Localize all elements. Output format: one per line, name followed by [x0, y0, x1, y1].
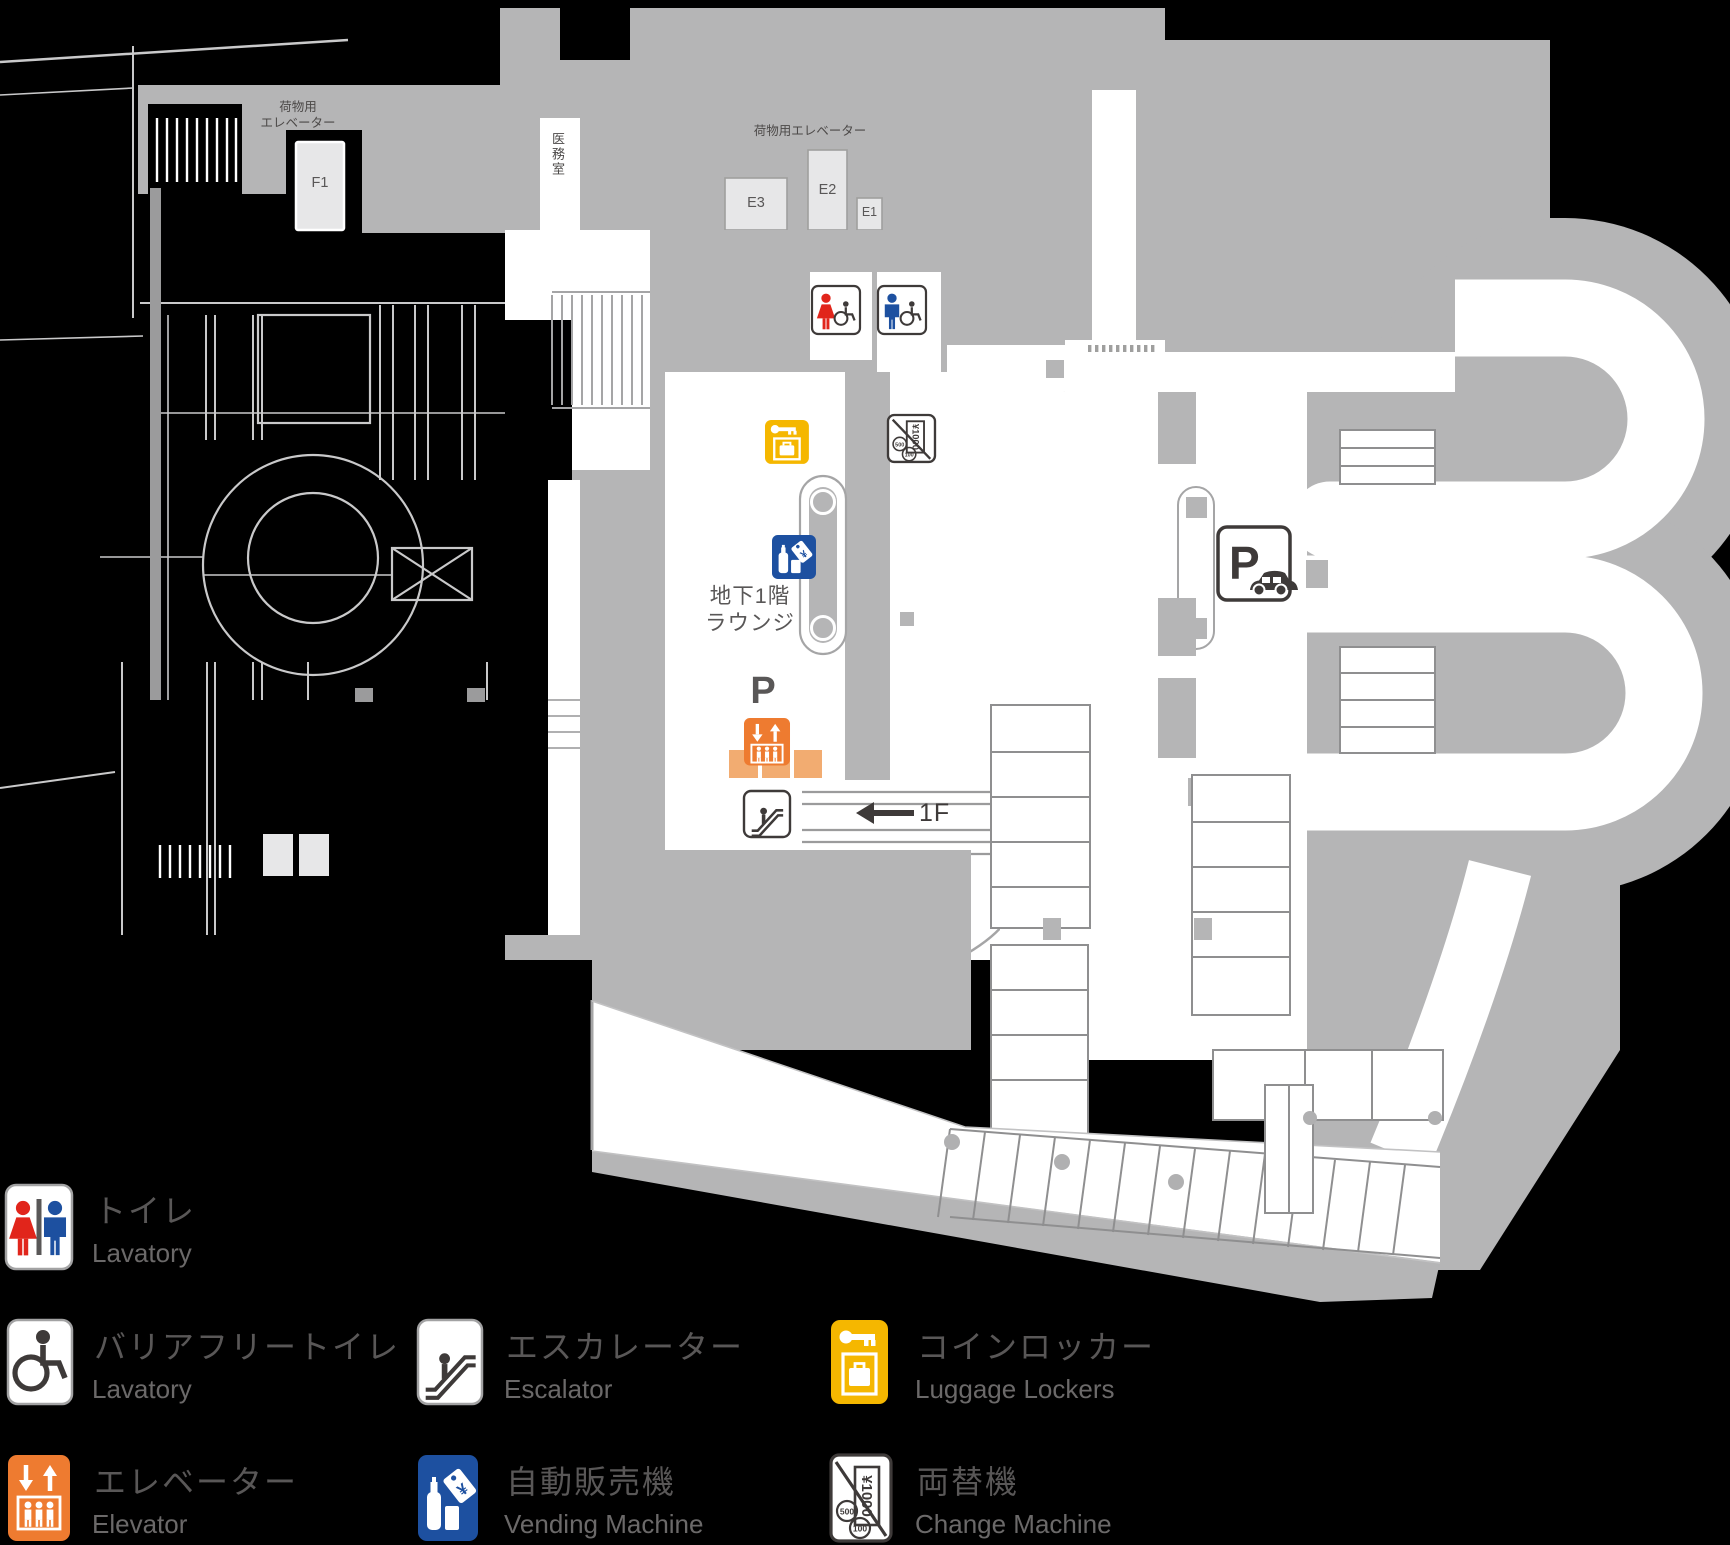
legend-escalator-en: Escalator — [504, 1374, 612, 1405]
stall-column-2 — [1192, 775, 1290, 1015]
legend-coin-locker-icon — [831, 1320, 888, 1404]
vending-machine-icon: ¥ — [772, 535, 816, 579]
change-machine-icon: ¥1000 500 100 — [888, 415, 935, 462]
legend-elevator-jp: エレベーター — [94, 1457, 298, 1503]
freight-elevator-e1-label: E1 — [857, 205, 882, 221]
luggage-elevator-top-label: 荷物用エレベーター — [735, 124, 885, 140]
coin-500-label: 500 — [895, 442, 904, 448]
floorplan-canvas: ¥1000 500 100 ¥ — [0, 0, 1730, 1545]
stalls-ramp-lower — [1340, 647, 1435, 753]
service-lift-cells — [263, 834, 293, 876]
legend-toilet-icon — [6, 1185, 72, 1269]
legend-vending-icon: ¥ — [418, 1455, 478, 1541]
coin-500-label: 500 — [840, 1507, 854, 1517]
legend-coin-locker-jp: コインロッカー — [917, 1322, 1155, 1368]
legend-change-machine-en: Change Machine — [915, 1509, 1112, 1540]
legend-escalator-jp: エスカレーター — [506, 1322, 744, 1368]
stalls-ramp-upper — [1340, 430, 1435, 484]
service-lane — [1092, 90, 1136, 352]
legend-toilet-en: Lavatory — [92, 1238, 192, 1269]
legend-change-machine-jp: 両替機 — [917, 1457, 1019, 1503]
b1-lounge-label: 地下1階 ラウンジ — [690, 583, 810, 637]
coin-locker-icon — [765, 420, 809, 464]
legend-change-machine-icon: ¥1000 500 100 — [831, 1455, 891, 1541]
legend-elevator-icon — [8, 1455, 70, 1541]
parking-p-letter: P — [1229, 537, 1260, 589]
legend-elevator-en: Elevator — [92, 1509, 187, 1540]
legend-vending-en: Vending Machine — [504, 1509, 703, 1540]
ramp-approach-road — [1065, 352, 1455, 392]
freight-elevator-e3-label: E3 — [725, 194, 787, 212]
stalls-row-right — [1213, 1050, 1443, 1120]
freight-elevator-e2-label: E2 — [808, 181, 847, 199]
lavatory-men-icon — [878, 286, 926, 334]
stall-column-1 — [991, 705, 1090, 1135]
parking-car-icon: P — [1218, 527, 1298, 600]
legend-barrier-free-en: Lavatory — [92, 1374, 192, 1405]
legend-toilet-jp: トイレ — [94, 1186, 196, 1232]
luggage-elevator-left-label: 荷物用 エレベーター — [248, 100, 348, 131]
parking-area-label: P — [738, 668, 788, 716]
freight-elevator-f1-label: F1 — [296, 174, 344, 192]
service-corridor-strip — [548, 480, 580, 935]
floor-map-b1: ¥1000 500 100 ¥ — [0, 0, 1730, 1545]
lavatory-women-icon — [812, 286, 860, 334]
coin-100-label: 100 — [853, 1524, 867, 1534]
legend-coin-locker-en: Luggage Lockers — [915, 1374, 1114, 1405]
escalator-icon — [744, 791, 790, 837]
legend-barrier-free-icon — [8, 1320, 72, 1404]
elevator-icon — [744, 718, 790, 765]
wall-strip — [150, 188, 161, 700]
coin-100-label: 100 — [905, 452, 914, 458]
legend-escalator-icon — [418, 1320, 482, 1404]
medical-room-label: 医務室 — [548, 132, 567, 177]
to-1f-label: 1F — [919, 798, 950, 829]
legend-vending-jp: 自動販売機 — [506, 1457, 676, 1503]
legend-barrier-free-jp: バリアフリートイレ — [94, 1322, 400, 1368]
